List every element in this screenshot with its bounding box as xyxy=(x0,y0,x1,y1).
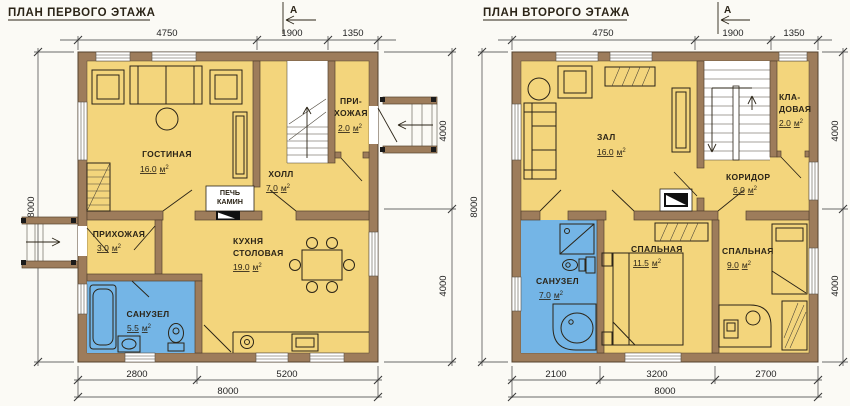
dim-bottom-3: 2700 xyxy=(755,369,776,380)
room-label-bathroom: САНУЗЕЛ xyxy=(127,309,170,319)
floor-plans-drawing: ПЛАН ПЕРВОГО ЭТАЖА А 4750 1900 1350 8000 xyxy=(0,0,850,406)
room-label-bedroom-1: СПАЛЬНАЯ xyxy=(631,244,683,254)
dim-bottom-1: 2800 xyxy=(126,369,147,380)
room-label-living: ГОСТИНАЯ xyxy=(142,149,192,159)
room-area-kitchen: 19.0м2 xyxy=(233,262,262,272)
window xyxy=(78,102,87,160)
porch-left xyxy=(21,217,78,268)
window xyxy=(512,104,521,160)
dim-right-4000-b: 4000 xyxy=(438,275,449,296)
room-label-bedroom-2: СПАЛЬНАЯ xyxy=(722,246,774,256)
dim-top-2: 1900 xyxy=(281,28,302,39)
dim-top-2: 1900 xyxy=(722,28,743,39)
first-floor-title: ПЛАН ПЕРВОГО ЭТАЖА xyxy=(8,7,156,19)
room-label-corridor: КОРИДОР xyxy=(726,172,770,182)
room-area-hall-room: 16.0м2 xyxy=(597,147,626,157)
second-floor-title: ПЛАН ВТОРОГО ЭТАЖА xyxy=(483,7,630,19)
room-label-entry: ПРИ- xyxy=(340,96,362,106)
svg-text:ДОВАЯ: ДОВАЯ xyxy=(779,104,811,114)
room-label-kitchen: КУХНЯ xyxy=(233,236,263,246)
room-label-bathroom-2: САНУЗЕЛ xyxy=(536,276,579,286)
dim-left-8000: 8000 xyxy=(469,196,480,217)
first-floor-plan: ПЛАН ПЕРВОГО ЭТАЖА А 4750 1900 1350 8000 xyxy=(8,2,456,401)
dim-right-4000-a: 4000 xyxy=(830,120,841,141)
stair-stringer xyxy=(733,86,739,160)
window xyxy=(625,353,681,362)
dim-bottom-1: 2100 xyxy=(545,369,566,380)
room-area-living: 16.0м2 xyxy=(140,164,169,174)
window xyxy=(125,353,155,362)
window xyxy=(809,162,818,200)
svg-text:СТОЛОВАЯ: СТОЛОВАЯ xyxy=(233,248,284,258)
svg-text:ХОЖАЯ: ХОЖАЯ xyxy=(334,108,368,118)
plans-svg: ПЛАН ПЕРВОГО ЭТАЖА А 4750 1900 1350 8000 xyxy=(0,0,850,406)
room-label-storage: КЛА- xyxy=(779,92,801,102)
window xyxy=(78,284,87,314)
dim-left-8000: 8000 xyxy=(26,196,37,217)
door-leaf xyxy=(378,108,397,142)
entrance-door-opening xyxy=(78,226,87,256)
dim-bottom-2: 3200 xyxy=(646,369,667,380)
window xyxy=(809,248,818,294)
dim-top-1: 4750 xyxy=(156,28,177,39)
window xyxy=(96,52,130,61)
dim-right-4000-a: 4000 xyxy=(438,120,449,141)
dim-bottom-total: 8000 xyxy=(654,386,675,397)
bathroom-2-floor xyxy=(521,220,597,353)
dim-right-4000-b: 4000 xyxy=(830,275,841,296)
stove-label-1: ПЕЧЬ xyxy=(220,188,240,197)
room-label-hall: ХОЛЛ xyxy=(268,169,293,179)
chimney xyxy=(660,189,692,211)
window xyxy=(152,52,196,61)
stove-label-2: КАМИН xyxy=(217,197,243,206)
porch-door-opening xyxy=(369,106,378,144)
window xyxy=(369,232,378,276)
dim-top-1: 4750 xyxy=(592,28,613,39)
window xyxy=(512,277,521,311)
window xyxy=(610,52,652,61)
window xyxy=(556,52,598,61)
dim-bottom-2: 5200 xyxy=(276,369,297,380)
section-letter: А xyxy=(290,5,297,16)
window xyxy=(256,353,288,362)
dim-top-3: 1350 xyxy=(783,28,804,39)
section-letter: А xyxy=(724,5,731,16)
dim-top-3: 1350 xyxy=(342,28,363,39)
porch-right xyxy=(380,97,437,153)
dim-bottom-total: 8000 xyxy=(217,386,238,397)
room-area-bedroom-1: 11.5м2 xyxy=(633,258,662,268)
window xyxy=(779,52,807,61)
room-label-hall-room: ЗАЛ xyxy=(597,132,616,142)
room-label-hallway: ПРИХОЖАЯ xyxy=(93,229,146,239)
second-floor-plan: ПЛАН ВТОРОГО ЭТАЖА А 4750 1900 1350 8000 xyxy=(469,2,848,401)
window xyxy=(310,353,344,362)
